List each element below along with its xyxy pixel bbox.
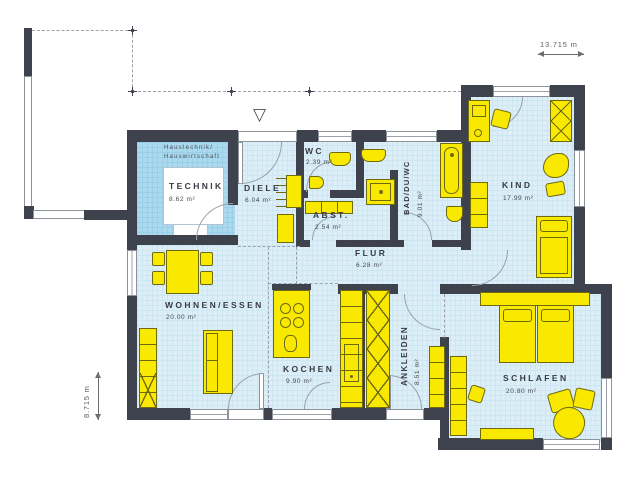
sofa-cushions [206,333,218,392]
wall-segment [332,408,386,420]
room-label-wohnen-essen: WOHNEN/ESSEN [165,300,264,310]
open-boundary-dashed [268,283,338,284]
wc-toilet [309,176,324,189]
room-sublabel-technik: Hauswirtschaft [164,154,220,160]
wardrobe-x-door [551,101,571,121]
pillow [540,220,568,232]
sideboard [139,328,157,408]
window [493,86,550,97]
roof-post-marker-icon [305,87,314,96]
cooktop-burner [293,317,304,328]
wall-segment [574,207,585,287]
room-area-bad: 9.01 m² [417,172,424,217]
wall-segment [127,408,190,420]
terrace-door-opening [228,409,264,420]
wall-segment [228,142,238,205]
wall-segment [437,130,463,142]
wall-segment [264,408,272,420]
room-label-bad: BAD/DU/WC [402,145,411,215]
room-area-technik: 8.62 m² [169,196,195,203]
dining-chair [152,252,165,266]
room-label-technik: TECHNIK [169,181,224,191]
window [272,409,332,420]
window [386,131,437,142]
window [318,131,352,142]
floor-plan: ▽ Haustechnik/ Hauswirtschaft TECHNIK 8.… [0,0,640,480]
bath-sink [361,149,386,162]
kids-wardrobe [550,100,572,142]
ankleiden-wardrobe [429,346,445,408]
entrance-marker-icon: ▽ [253,106,266,123]
wall-segment [127,130,238,142]
cooktop-burner [293,303,304,314]
bedroom-wardrobe [450,356,467,436]
bedroom-bench [480,428,534,440]
terrace-wall-light [24,76,32,208]
dining-table [166,250,199,294]
bathtub [440,143,463,198]
roof-overhang-dashed-line [132,30,133,92]
room-area-wohnen-essen: 20.00 m² [166,314,196,321]
open-boundary-dashed [268,247,269,408]
arrowhead-right-icon [578,51,584,57]
window [190,409,228,420]
wall-segment [336,240,404,247]
wall-segment [352,130,386,142]
room-area-abst: 2.54 m² [315,224,341,231]
faucet-dot [350,375,353,378]
blanket [540,237,568,274]
bathtub-drain [450,153,454,157]
wardrobe-x-door [367,320,389,349]
dining-chair [200,252,213,266]
open-boundary-dashed [296,247,297,284]
dimension-height-line [95,372,102,420]
room-label-diele: DIELE [244,183,281,193]
room-label-wc: WC [305,146,324,156]
open-boundary-dashed [444,294,445,338]
desk-item [472,105,486,117]
terrace-wall-light [33,210,85,219]
window [574,150,585,207]
shower [366,179,395,205]
arrowhead-down-icon [95,414,101,420]
room-area-wc: 2.39 m² [306,159,332,166]
wall-segment [432,240,462,247]
room-label-abst: ABST. [313,210,350,220]
room-area-kind: 17.99 m² [503,195,533,202]
room-area-kochen: 9.90 m² [286,378,312,385]
hall-cabinet [277,214,294,243]
wall-segment [601,438,612,450]
kitchen-tall-units [340,290,363,408]
kids-desk [468,100,490,142]
bed-mattress [537,305,574,363]
window [543,439,600,450]
room-area-schlafen: 20.80 m² [506,388,536,395]
room-sublabel-technik: Haustechnik/ [164,145,213,151]
dining-chair [152,271,165,285]
desk-item [474,129,482,137]
wall-segment [127,130,137,250]
pillow [503,309,532,322]
cooktop-burner [280,303,291,314]
kids-bed [536,216,572,278]
wardrobe-x-door [367,291,389,320]
room-area-ankleiden: 8.51 m² [414,345,421,385]
room-label-ankleiden: ANKLEIDEN [400,298,409,386]
sofa [203,330,233,394]
arrowhead-up-icon [95,372,101,378]
kids-shelf [470,182,488,228]
terrace-wall-segment [24,28,32,78]
roof-overhang-dashed-line [32,30,133,31]
island-sink [284,335,297,352]
room-area-diele: 6.04 m² [245,197,271,204]
kitchen-island [273,290,310,358]
bed-headboard [480,292,590,306]
bath-toilet [446,206,463,222]
open-boundary-dashed [238,246,300,247]
terrace-wall-segment [84,210,128,220]
wall-segment [574,85,585,150]
wc-sink [329,152,351,166]
entrance-door-opening [238,131,297,142]
coat-rack [286,175,302,208]
bed-mattress [499,305,536,363]
arrowhead-left-icon [538,51,544,57]
room-area-flur: 6.28 m² [356,262,382,269]
sofa-cushion-line [206,360,218,361]
cooktop-burner [280,317,291,328]
wardrobe-x-door [551,121,571,141]
room-label-schlafen: SCHLAFEN [503,373,568,383]
wall-segment [297,130,318,142]
wardrobe-tall [366,290,390,408]
dimension-width-line [538,51,584,58]
dimension-height-label: 8.715 m [82,374,91,418]
wall-segment [127,296,137,420]
roof-post-marker-icon [128,26,137,35]
pillow [541,309,570,322]
wall-segment [601,284,612,378]
room-label-flur: FLUR [355,248,387,258]
pouf [572,387,596,411]
roof-post-marker-icon [128,87,137,96]
window [601,378,612,438]
sideboard-x-panel [140,373,156,407]
dimension-width-label: 13.715 m [540,40,578,49]
roof-post-marker-icon [227,87,236,96]
shower-drain [379,190,383,194]
window [127,250,137,296]
room-label-kochen: KOCHEN [283,364,334,374]
wardrobe-x-door [367,378,389,407]
wardrobe-x-door [367,349,389,378]
roof-overhang-dashed-line [133,91,461,92]
terrace-door-opening [386,409,424,420]
room-label-kind: KIND [502,180,532,190]
dining-chair [200,271,213,285]
